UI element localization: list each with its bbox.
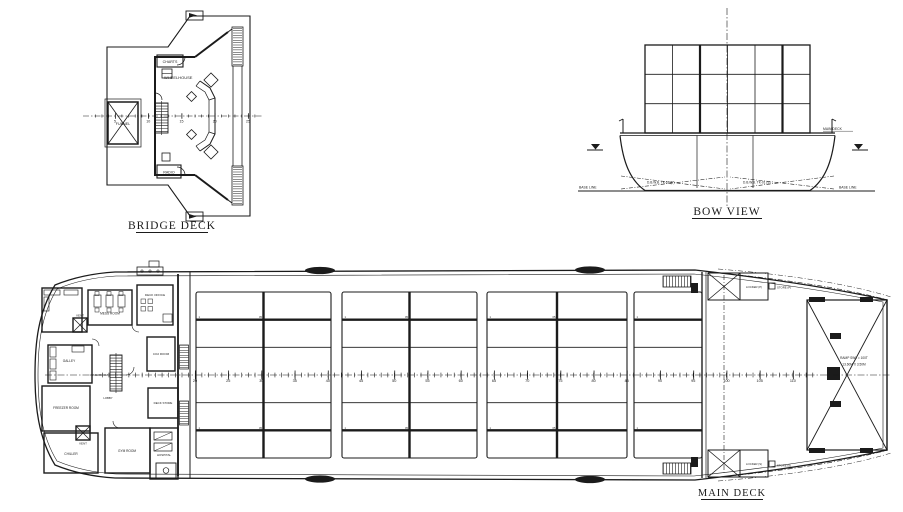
- svg-text:40: 40: [326, 379, 330, 383]
- chair: [187, 92, 197, 102]
- door-arc: [177, 57, 185, 65]
- charts-label: CHARTS: [163, 60, 178, 64]
- svg-text:30: 30: [259, 379, 263, 383]
- main-stairs: [110, 353, 122, 393]
- ramp-hinge: [830, 333, 841, 339]
- svg-text:05: 05: [405, 315, 408, 319]
- svg-text:85: 85: [625, 379, 629, 383]
- frame-number: 25: [246, 120, 250, 124]
- room-label: MESS ROOM: [100, 312, 120, 316]
- room-label: DECK OFFICE: [145, 293, 165, 297]
- room-label: VENT: [76, 314, 84, 318]
- locker-p-label: LOCKER (P): [746, 285, 762, 289]
- bridge-deck-title: BRIDGE DECK: [128, 220, 216, 233]
- bridge-centerline-scale: 5 10 15 20 25: [83, 116, 263, 124]
- base-line-label-right: BASE LINE: [839, 186, 857, 190]
- bow-view-title: BOW VIEW: [692, 206, 762, 219]
- container-grid: [645, 45, 810, 133]
- room-label: HOSPITAL: [157, 453, 171, 457]
- ramp-label-2: 13.60M X 3.50M: [842, 363, 866, 367]
- view-title: BOW VIEW: [693, 206, 760, 218]
- view-title: MAIN DECK: [698, 488, 766, 499]
- main-deck-view: MESS ROOM DECK OFFICE VENT CO2 ROOM GALL…: [30, 255, 903, 512]
- store-s-label: STORE (S): [777, 464, 791, 468]
- room-label: LOBBY: [103, 396, 112, 400]
- funnel-label: FUNNEL: [116, 122, 130, 126]
- bridge-deck-view: FUNNEL WHEELHOUSE CHARTS RADIO: [80, 5, 270, 235]
- bollard: [305, 475, 335, 482]
- svg-text:1: 1: [199, 315, 201, 319]
- main-deck-centerline: 20 25 30 35 40 45 50 55 60 65 70 75 80 8…: [45, 375, 890, 383]
- frame-number: 20: [213, 120, 217, 124]
- room-label: GYM ROOM: [118, 449, 136, 453]
- locker-s-label: LOCKER (S): [746, 462, 762, 466]
- frame-number: 5: [114, 120, 116, 124]
- tank-label-port: D.B.W.B. TK-01 (P): [647, 181, 675, 185]
- deck-store: DECK STORE: [148, 388, 178, 418]
- side-ladder: [180, 345, 189, 425]
- tank-label-stbd: D.B.W.B. TK-01 (S): [743, 181, 771, 185]
- room-label: DECK STORE: [154, 401, 173, 405]
- svg-text:1: 1: [490, 315, 492, 319]
- svg-text:1: 1: [637, 315, 639, 319]
- bow-labels: D.B.W.B. TK-01 (P) D.B.W.B. TK-01 (S) MA…: [579, 127, 857, 190]
- door-arc: [155, 93, 162, 100]
- vent-box-fwd: VENT: [73, 314, 87, 333]
- room-label: VENT: [79, 442, 87, 446]
- svg-text:80: 80: [591, 379, 595, 383]
- galley: GALLEY: [48, 345, 92, 383]
- chair: [187, 130, 197, 140]
- wheelhouse-label: WHEELHOUSE: [164, 75, 193, 80]
- wc-room: [156, 463, 176, 478]
- svg-text:1: 1: [345, 315, 347, 319]
- room-label: CHILLER: [64, 452, 78, 456]
- bow-view: D.B.W.B. TK-01 (P) D.B.W.B. TK-01 (S) MA…: [575, 0, 895, 230]
- bollard: [305, 267, 335, 274]
- radio-label: RADIO: [163, 171, 175, 175]
- freezer-room: FREEZER ROOM: [42, 386, 90, 431]
- svg-text:100: 100: [723, 379, 729, 383]
- view-title: BRIDGE DECK: [128, 220, 216, 232]
- svg-text:95: 95: [691, 379, 695, 383]
- co2-room: CO2 ROOM: [147, 337, 175, 371]
- main-deck-title: MAIN DECK: [698, 488, 766, 500]
- deck-office: DECK OFFICE: [137, 261, 173, 325]
- frame-number: 10: [146, 120, 150, 124]
- bollard: [575, 266, 605, 273]
- main-deck-label: MAIN DECK: [823, 127, 843, 131]
- mess-room: MESS ROOM: [88, 290, 132, 325]
- svg-text:55: 55: [425, 379, 429, 383]
- funnel-box: FUNNEL: [105, 99, 141, 147]
- ramp-hinge: [827, 367, 840, 380]
- svg-text:90: 90: [658, 379, 662, 383]
- svg-text:20: 20: [193, 379, 197, 383]
- svg-text:05: 05: [259, 315, 262, 319]
- svg-text:105: 105: [757, 379, 763, 383]
- store-p-label: STORE (P): [777, 286, 791, 290]
- base-line-label-left: BASE LINE: [579, 186, 597, 190]
- svg-text:25: 25: [226, 379, 230, 383]
- frame-number: 15: [180, 120, 184, 124]
- lounge-room: [42, 288, 82, 332]
- draft-marks: [587, 144, 868, 150]
- accommodation: MESS ROOM DECK OFFICE VENT CO2 ROOM GALL…: [42, 261, 190, 479]
- flag-mark-bottom: [189, 214, 197, 219]
- room-label: GALLEY: [63, 359, 76, 363]
- bollard: [575, 476, 605, 483]
- svg-text:50: 50: [392, 379, 396, 383]
- frame-numbers: 20 25 30 35 40 45 50 55 60 65 70 75 80 8…: [193, 379, 796, 383]
- bridge-stairs: [155, 101, 168, 135]
- gym-room: GYM ROOM: [105, 428, 150, 473]
- svg-text:70: 70: [525, 379, 529, 383]
- svg-text:65: 65: [492, 379, 496, 383]
- toilet-icon: [163, 468, 169, 474]
- room-label: FREEZER ROOM: [53, 406, 79, 410]
- flag-mark-top: [189, 13, 197, 18]
- svg-text:05: 05: [553, 315, 556, 319]
- ramp-hinge: [830, 401, 841, 407]
- svg-text:35: 35: [293, 379, 297, 383]
- vent-box-aft: VENT: [76, 426, 90, 446]
- hospital: HOSPITAL: [150, 428, 178, 479]
- svg-text:75: 75: [558, 379, 562, 383]
- svg-text:110: 110: [790, 379, 796, 383]
- svg-text:60: 60: [459, 379, 463, 383]
- ramp-label-1: RAMP SWL = 100T: [840, 356, 868, 360]
- room-label: CO2 ROOM: [153, 352, 170, 356]
- svg-text:45: 45: [359, 379, 363, 383]
